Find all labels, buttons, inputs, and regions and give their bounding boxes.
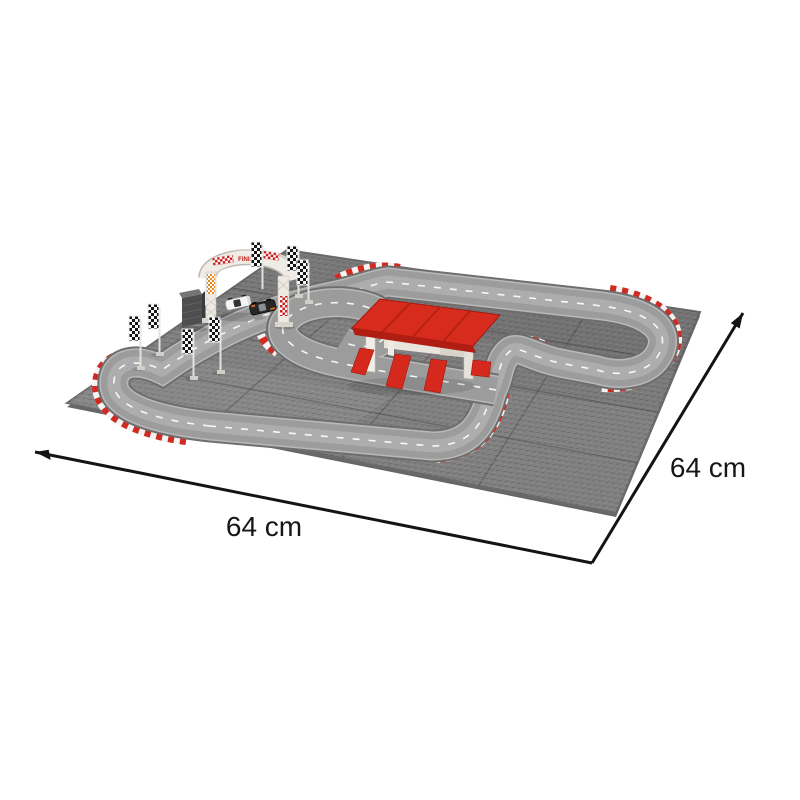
pillar-checker-red [280,296,288,316]
pillar-checker-orange [207,274,215,294]
dimension-arrow-up-icon [731,313,743,329]
gate-base-right [275,322,293,327]
race-track-scene: FINISH [0,0,800,800]
product-image: FINISH [0,0,800,800]
width-dimension-label: 64 cm [226,511,302,542]
depth-dimension-label: 64 cm [670,452,746,483]
building-shadow [348,377,476,395]
